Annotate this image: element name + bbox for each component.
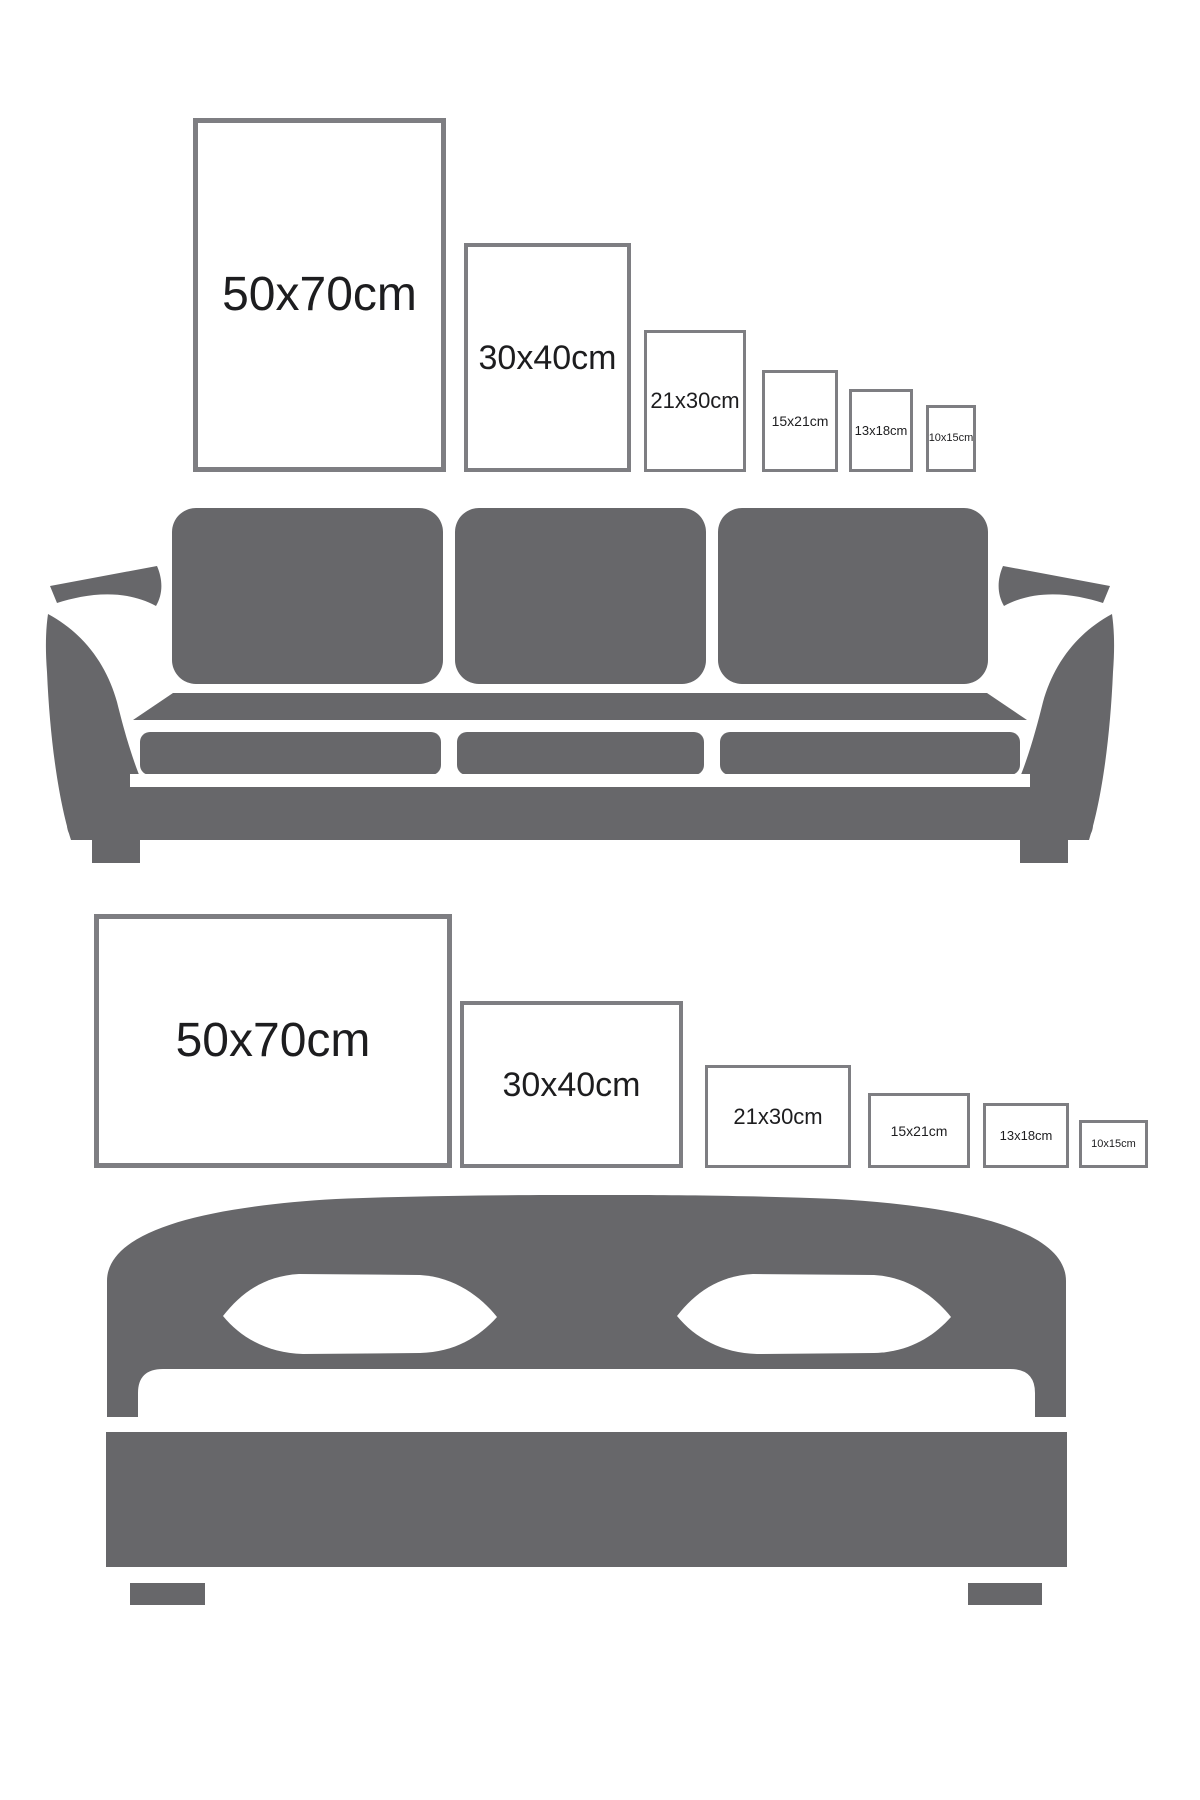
- sofa-left-arm-top: [50, 566, 161, 606]
- frame-size-label: 21x30cm: [733, 1106, 822, 1128]
- frame-size-label: 10x15cm: [929, 433, 974, 444]
- size-frame-portrait-21x30: 21x30cm: [644, 330, 746, 472]
- sofa-seat-cushion-right: [720, 732, 1020, 775]
- frame-size-label: 15x21cm: [891, 1124, 948, 1138]
- sofa-back-cushion-middle: [455, 508, 706, 684]
- frame-size-label: 50x70cm: [176, 1017, 371, 1065]
- sofa-illustration: [45, 506, 1115, 866]
- bed-pillow-left: [223, 1274, 497, 1354]
- sofa-seat-underline: [130, 774, 1030, 787]
- size-frame-landscape-50x70: 50x70cm: [94, 914, 452, 1168]
- size-frame-landscape-15x21: 15x21cm: [868, 1093, 970, 1168]
- sofa-back-cushion-right: [718, 508, 988, 684]
- sofa-right-arm-top: [999, 566, 1110, 606]
- size-frame-portrait-50x70: 50x70cm: [193, 118, 446, 472]
- poster-size-comparison-infographic: 50x70cm 30x40cm 21x30cm 15x21cm 13x18cm …: [0, 0, 1200, 1800]
- size-frame-landscape-13x18: 13x18cm: [983, 1103, 1069, 1168]
- sofa-seat-deck: [133, 693, 1027, 720]
- bed-left-leg: [130, 1583, 205, 1605]
- frame-size-label: 30x40cm: [503, 1068, 641, 1102]
- size-frame-landscape-30x40: 30x40cm: [460, 1001, 683, 1168]
- bed-frame-slab: [106, 1432, 1067, 1567]
- size-frame-portrait-13x18: 13x18cm: [849, 389, 913, 472]
- frame-size-label: 15x21cm: [772, 414, 829, 428]
- sofa-right-leg: [1020, 840, 1068, 863]
- frame-size-label: 10x15cm: [1091, 1139, 1136, 1150]
- size-frame-landscape-10x15: 10x15cm: [1079, 1120, 1148, 1168]
- sofa-seat-cushion-left: [140, 732, 441, 775]
- sofa-left-leg: [92, 840, 140, 863]
- size-frame-portrait-10x15: 10x15cm: [926, 405, 976, 472]
- sofa-seat-cushion-middle: [457, 732, 704, 775]
- frame-size-label: 21x30cm: [650, 390, 739, 412]
- size-frame-landscape-21x30: 21x30cm: [705, 1065, 851, 1168]
- frame-size-label: 13x18cm: [855, 424, 908, 437]
- bed-pillow-right: [677, 1274, 951, 1354]
- size-frame-portrait-30x40: 30x40cm: [464, 243, 631, 472]
- sofa-back-cushion-left: [172, 508, 443, 684]
- frame-size-label: 13x18cm: [1000, 1129, 1053, 1142]
- bed-right-leg: [968, 1583, 1042, 1605]
- size-frame-portrait-15x21: 15x21cm: [762, 370, 838, 472]
- sofa-base: [67, 787, 1093, 840]
- bed-illustration: [106, 1193, 1067, 1605]
- frame-size-label: 30x40cm: [479, 341, 617, 375]
- frame-size-label: 50x70cm: [222, 271, 417, 319]
